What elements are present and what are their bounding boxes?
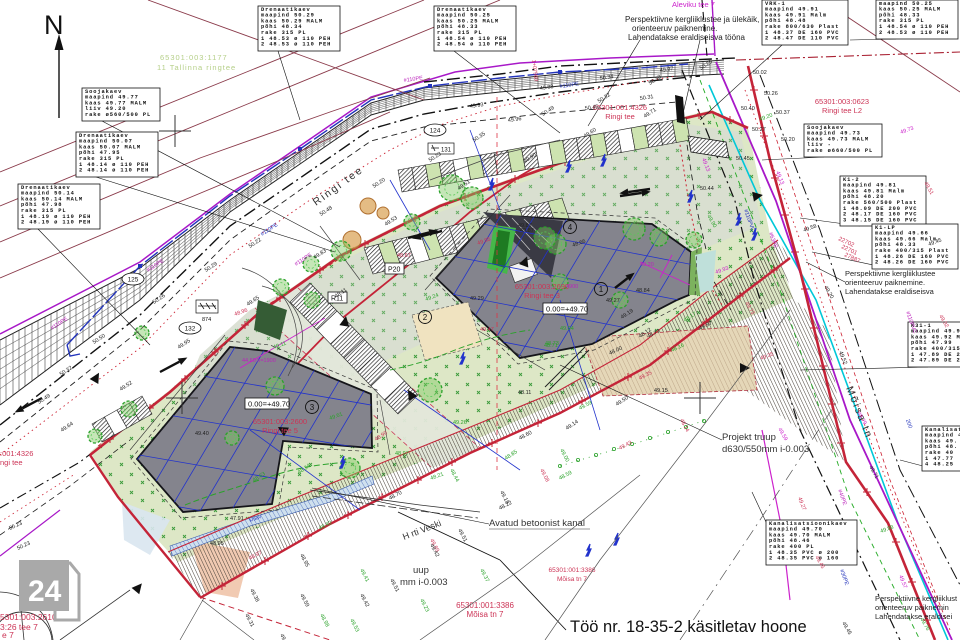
svg-text:Aleviku tee 7: Aleviku tee 7 — [672, 0, 715, 9]
svg-text:50.37: 50.37 — [776, 110, 790, 116]
svg-text:Ringi tee 5: Ringi tee 5 — [262, 426, 298, 435]
svg-text:2 48.26 DE 160 PVC: 2 48.26 DE 160 PVC — [875, 260, 949, 266]
svg-text:Lahendatakse eraldiseisva töön: Lahendatakse eraldiseisva tööna — [628, 33, 746, 42]
svg-text:48.11: 48.11 — [518, 390, 531, 396]
svg-text:2 47.89 DE 200: 2 47.89 DE 200 — [911, 358, 960, 364]
svg-text:50.26: 50.26 — [764, 91, 778, 97]
svg-text:orienteeruv paiknemine.: orienteeruv paiknemine. — [632, 24, 717, 33]
svg-text:49.27: 49.27 — [606, 298, 620, 304]
svg-text:49.04: 49.04 — [560, 326, 574, 332]
svg-text:orienteeruv paiknemin: orienteeruv paiknemin — [875, 603, 949, 612]
svg-text:Ringi tee 3: Ringi tee 3 — [524, 291, 560, 300]
svg-text:11 Tallinna ringtee: 11 Tallinna ringtee — [157, 63, 236, 72]
svg-text:Lahendatakse eraldiseisva: Lahendatakse eraldiseisva — [845, 287, 935, 296]
svg-text:d630/550mm i-0.003: d630/550mm i-0.003 — [722, 444, 809, 455]
svg-text:0.00=+49.70: 0.00=+49.70 — [248, 400, 290, 409]
svg-text:49.40: 49.40 — [195, 431, 209, 437]
svg-text:65301:001:4326: 65301:001:4326 — [593, 103, 647, 112]
svg-text:874: 874 — [202, 317, 211, 323]
svg-text:44.60 h=1900: 44.60 h=1900 — [242, 358, 276, 364]
svg-text:49.15: 49.15 — [654, 388, 668, 394]
svg-text:P20: P20 — [388, 267, 401, 274]
svg-text:50.44: 50.44 — [700, 186, 714, 192]
svg-text:2: 2 — [423, 313, 428, 322]
svg-text:1: 1 — [599, 285, 604, 294]
svg-text:rake ø660/500 PL: rake ø660/500 PL — [807, 148, 873, 154]
svg-text:2 48.54 ø 110 PEH: 2 48.54 ø 110 PEH — [437, 42, 507, 48]
svg-text:4 48.25: 4 48.25 — [925, 462, 954, 468]
svg-text:Avatud betoonist kanal: Avatud betoonist kanal — [489, 518, 585, 529]
svg-text:N: N — [44, 10, 64, 40]
svg-text:49.26: 49.26 — [453, 420, 467, 426]
svg-text:125: 125 — [128, 277, 139, 284]
svg-text:48.84: 48.84 — [636, 288, 650, 294]
svg-text:Perspektiivne kergliiklust: Perspektiivne kergliiklust — [875, 594, 958, 603]
svg-text:Perspektiivne kergliiklustee j: Perspektiivne kergliiklustee ja ülekäik, — [625, 15, 759, 24]
svg-text:50.27: 50.27 — [752, 127, 766, 133]
svg-text:65301:003:2690: 65301:003:2690 — [515, 282, 569, 291]
svg-text:24: 24 — [28, 575, 62, 608]
svg-text:50.45: 50.45 — [736, 156, 750, 162]
svg-text:3 48.15 DE 160 PVC: 3 48.15 DE 160 PVC — [843, 217, 917, 223]
svg-text:mm i-0.003: mm i-0.003 — [400, 577, 448, 588]
svg-text:2 48.35 PVC ø 160: 2 48.35 PVC ø 160 — [769, 556, 839, 562]
svg-text:Töö nr. 18-35-2 käsitletav hoo: Töö nr. 18-35-2 käsitletav hoone — [570, 618, 807, 636]
svg-text:50.02: 50.02 — [753, 70, 767, 76]
svg-text:49.29: 49.29 — [470, 296, 484, 302]
svg-text:2 48.19 ø 110 PEH: 2 48.19 ø 110 PEH — [21, 220, 91, 226]
svg-text:ngi tee: ngi tee — [0, 458, 23, 467]
svg-text:48.95: 48.95 — [210, 541, 224, 547]
svg-text:Mõisa tn 7: Mõisa tn 7 — [467, 610, 504, 619]
svg-text:orienteeruv paiknemine.: orienteeruv paiknemine. — [845, 278, 925, 287]
svg-text:48.67: 48.67 — [397, 253, 411, 259]
svg-text:4900: 4900 — [566, 284, 578, 290]
svg-text:3: 3 — [310, 403, 315, 412]
svg-text:0.00=+49.70: 0.00=+49.70 — [546, 305, 588, 314]
svg-text:2 48.53 ø 110 PEH: 2 48.53 ø 110 PEH — [879, 30, 949, 36]
svg-text:124: 124 — [430, 128, 441, 135]
svg-text:5301:003:2610: 5301:003:2610 — [0, 612, 57, 622]
svg-text:e 7: e 7 — [2, 630, 14, 640]
svg-text:65301:003:0623: 65301:003:0623 — [815, 97, 869, 106]
svg-text:Lahendatakse eraldisei: Lahendatakse eraldisei — [875, 612, 952, 621]
svg-text:65301:003:2600: 65301:003:2600 — [253, 417, 307, 426]
svg-text:Ringi tee: Ringi tee — [605, 112, 635, 121]
svg-text:50.20: 50.20 — [781, 137, 795, 143]
svg-text:Perspektiivne kergliiklustee: Perspektiivne kergliiklustee — [845, 269, 935, 278]
svg-text:131: 131 — [441, 148, 452, 154]
svg-text:47.91: 47.91 — [230, 516, 244, 522]
svg-text:48.73: 48.73 — [545, 341, 559, 347]
svg-text:132: 132 — [185, 326, 196, 333]
svg-text:4: 4 — [568, 223, 573, 232]
svg-text:49.87: 49.87 — [520, 228, 534, 234]
svg-text:50.40: 50.40 — [741, 106, 755, 112]
svg-text:rake ø560/500 PL: rake ø560/500 PL — [85, 112, 151, 118]
svg-text:49.47: 49.47 — [480, 327, 494, 333]
svg-text:49.20: 49.20 — [640, 262, 654, 268]
svg-text:Mõisa tn 7: Mõisa tn 7 — [557, 576, 587, 583]
svg-text:48.97: 48.97 — [395, 451, 409, 457]
svg-text:uup: uup — [413, 565, 429, 576]
svg-text:65301:001:3386: 65301:001:3386 — [549, 567, 596, 574]
svg-text:2 48.14 ø 110 PEH: 2 48.14 ø 110 PEH — [79, 168, 149, 174]
svg-text:Ringi tee L2: Ringi tee L2 — [822, 106, 862, 115]
svg-text:2 48.47 DE 110 PVC: 2 48.47 DE 110 PVC — [765, 36, 839, 42]
svg-text::001:4326: :001:4326 — [0, 449, 33, 458]
svg-text:2 48.53 ø 110 PEH: 2 48.53 ø 110 PEH — [261, 42, 331, 48]
svg-text:65301:003:1177: 65301:003:1177 — [160, 53, 228, 62]
svg-text:Projekt truup: Projekt truup — [722, 432, 776, 443]
